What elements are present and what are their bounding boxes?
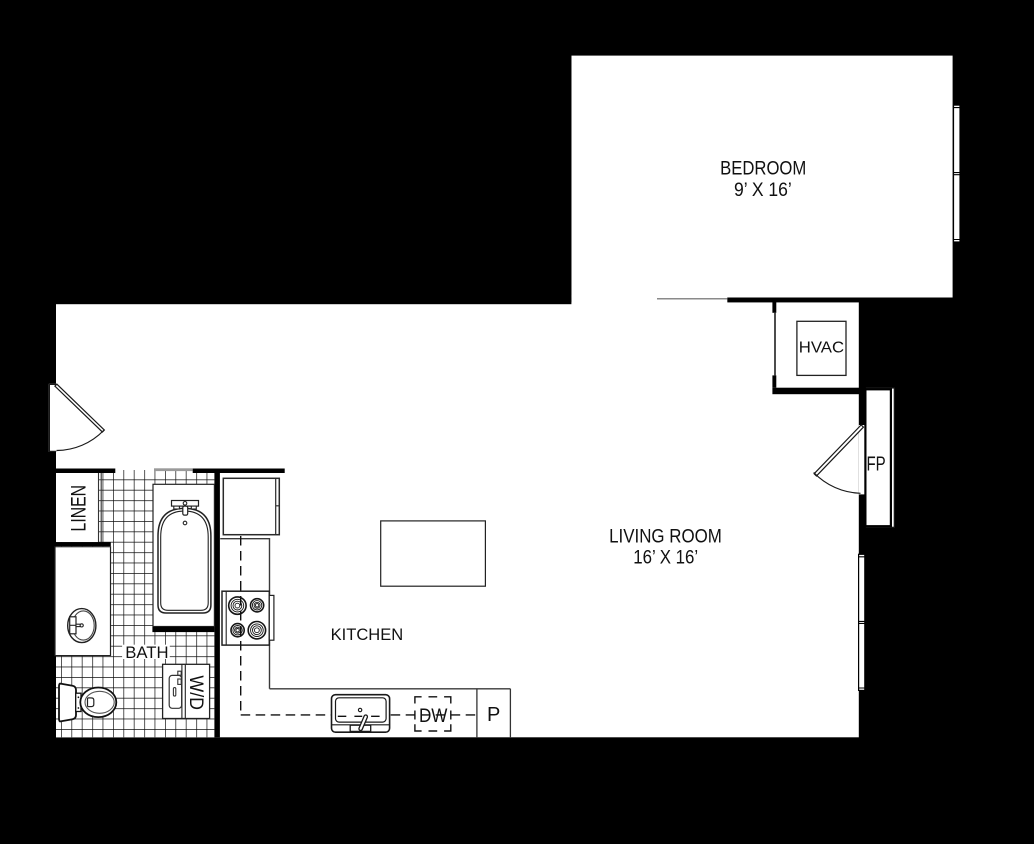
svg-text:LIVING ROOM: LIVING ROOM [609, 525, 722, 547]
svg-text:BEDROOM: BEDROOM [720, 159, 806, 180]
svg-text:P: P [487, 704, 500, 726]
svg-text:16’ X 16’: 16’ X 16’ [633, 547, 698, 568]
svg-text:W/D: W/D [185, 675, 207, 710]
svg-text:DW: DW [419, 706, 448, 727]
svg-text:9’ X 16’: 9’ X 16’ [734, 180, 792, 201]
svg-text:FP: FP [867, 454, 886, 476]
svg-text:KITCHEN: KITCHEN [331, 626, 404, 644]
svg-text:LINEN: LINEN [67, 485, 90, 532]
svg-text:BATH: BATH [125, 643, 168, 662]
svg-text:HVAC: HVAC [799, 340, 844, 357]
